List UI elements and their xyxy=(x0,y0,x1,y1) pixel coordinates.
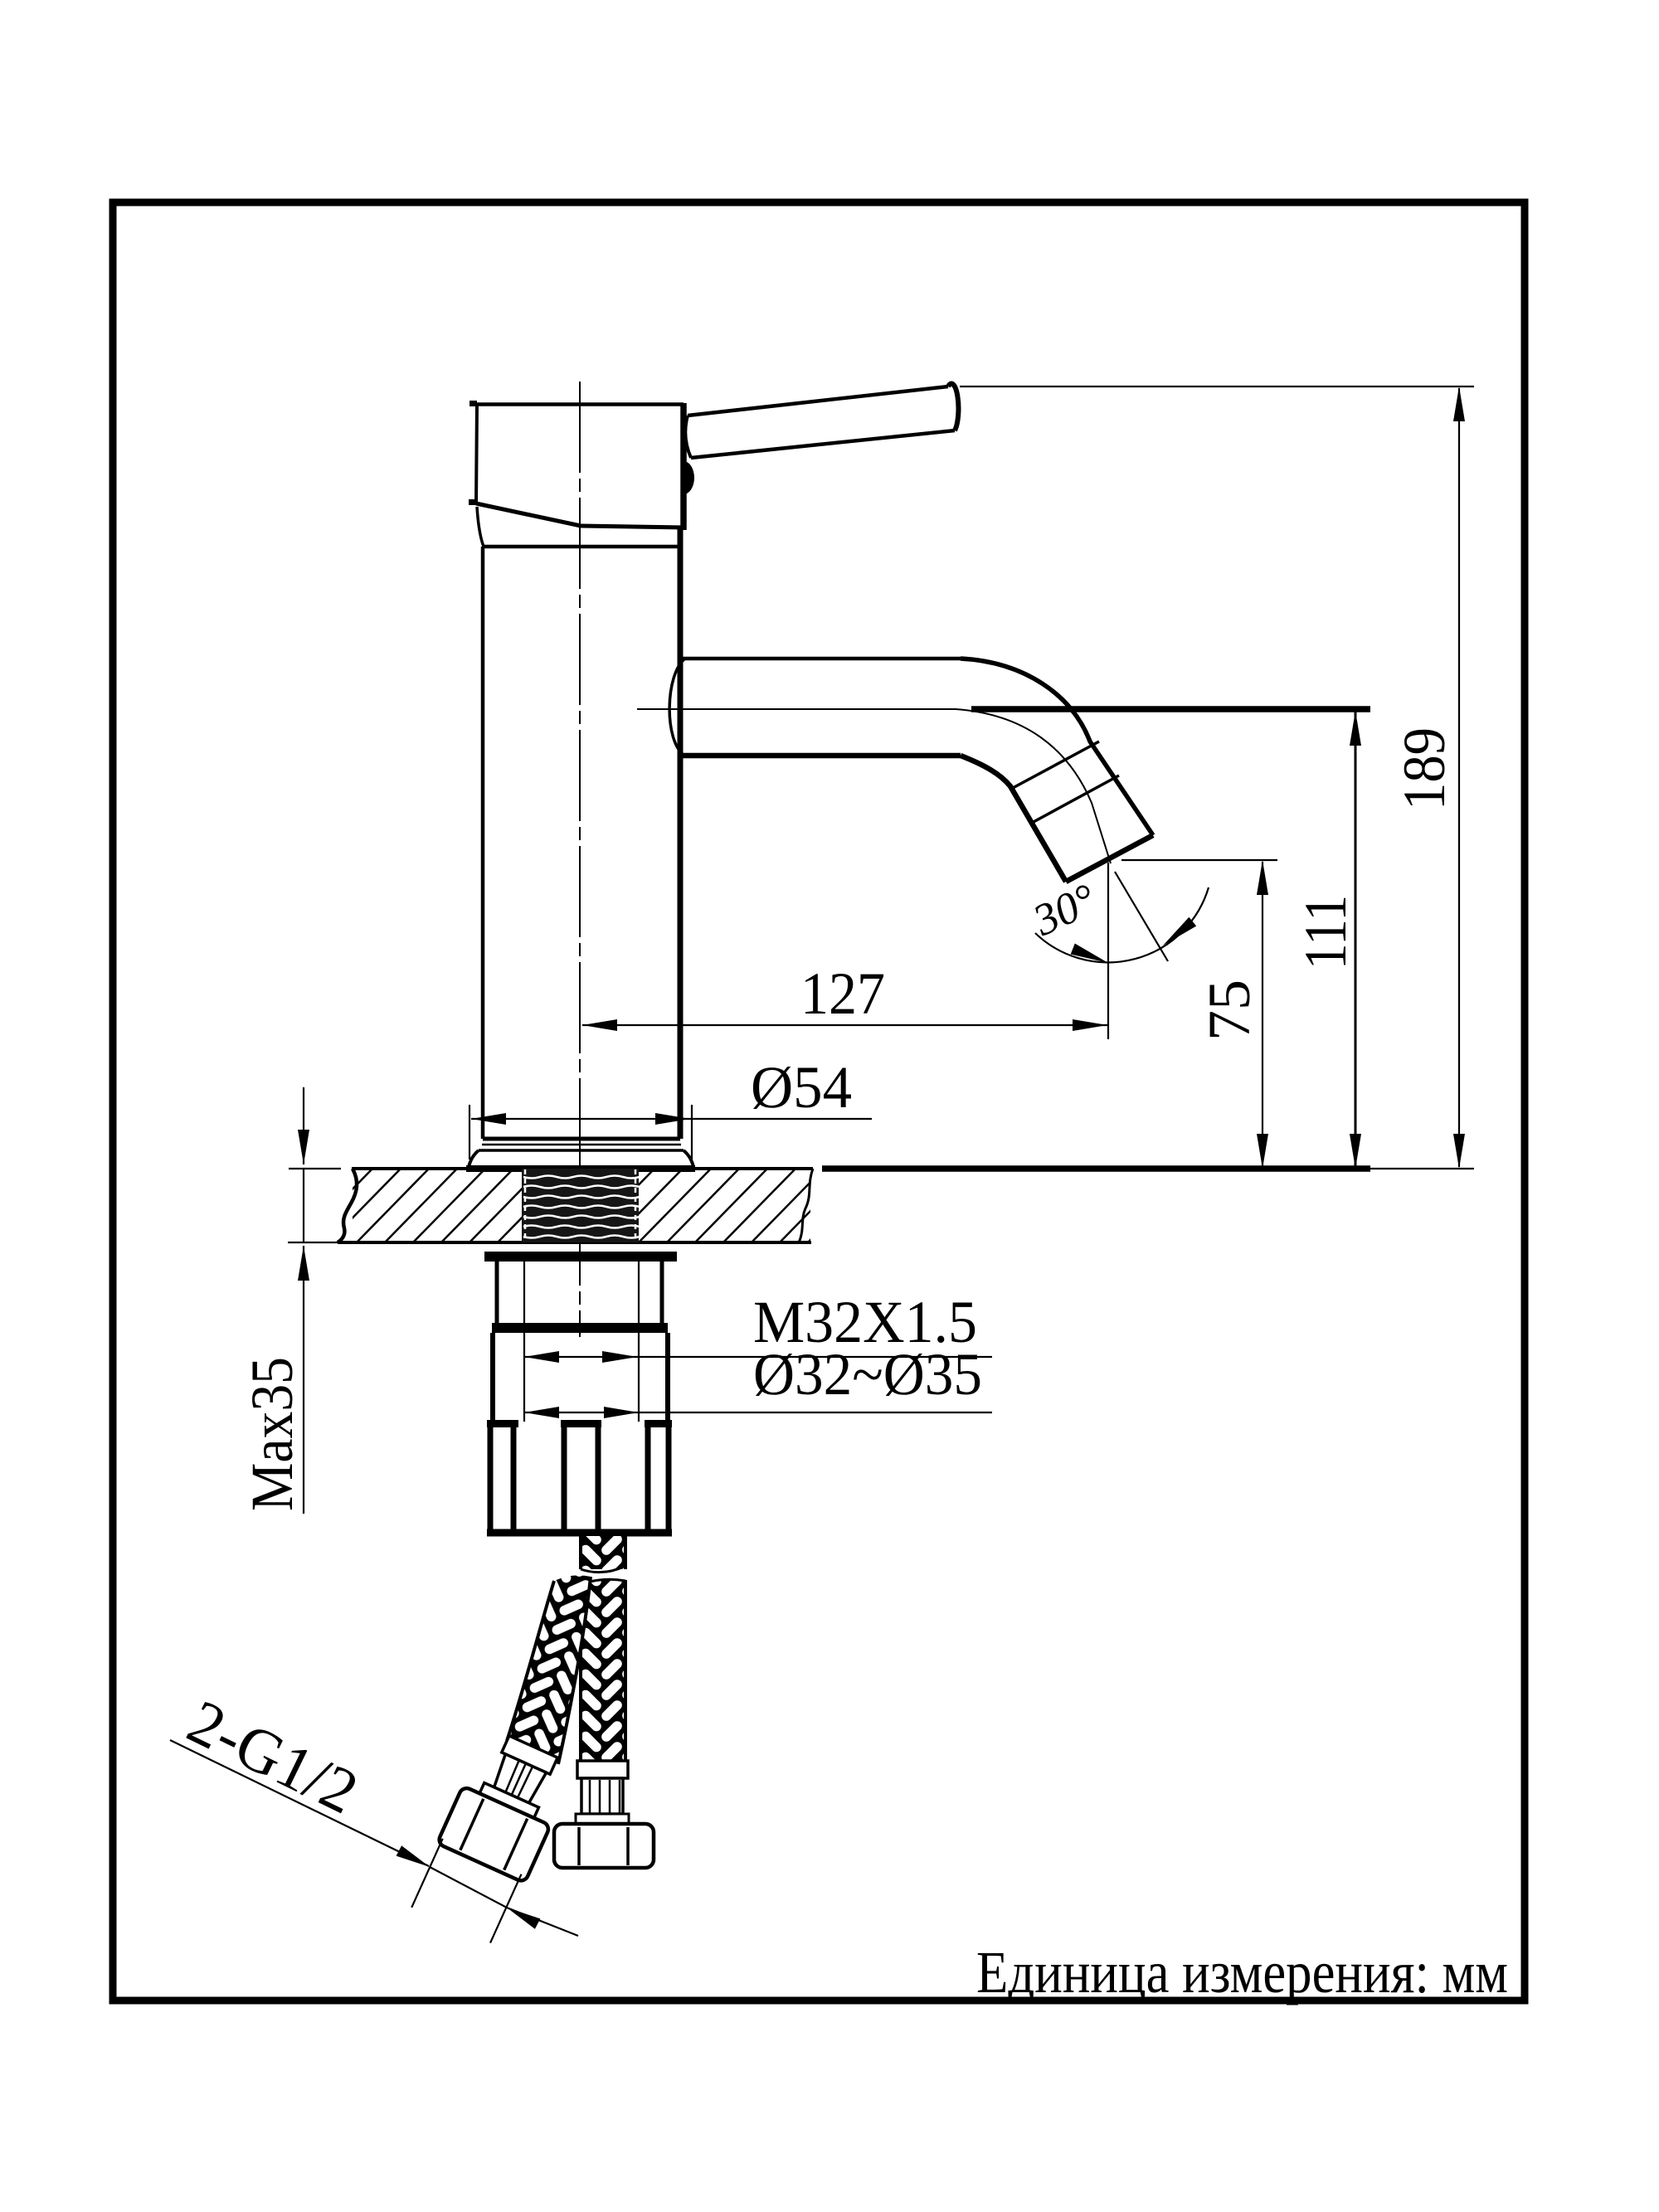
svg-text:Max35: Max35 xyxy=(239,1357,305,1511)
svg-text:Единица измерения: мм: Единица измерения: мм xyxy=(976,1939,1508,2005)
svg-text:127: 127 xyxy=(800,960,885,1027)
svg-text:Ø54: Ø54 xyxy=(751,1054,852,1121)
svg-text:Ø32~Ø35: Ø32~Ø35 xyxy=(753,1341,982,1407)
svg-text:189: 189 xyxy=(1391,727,1457,810)
svg-text:75: 75 xyxy=(1196,980,1262,1041)
svg-text:111: 111 xyxy=(1292,895,1359,970)
